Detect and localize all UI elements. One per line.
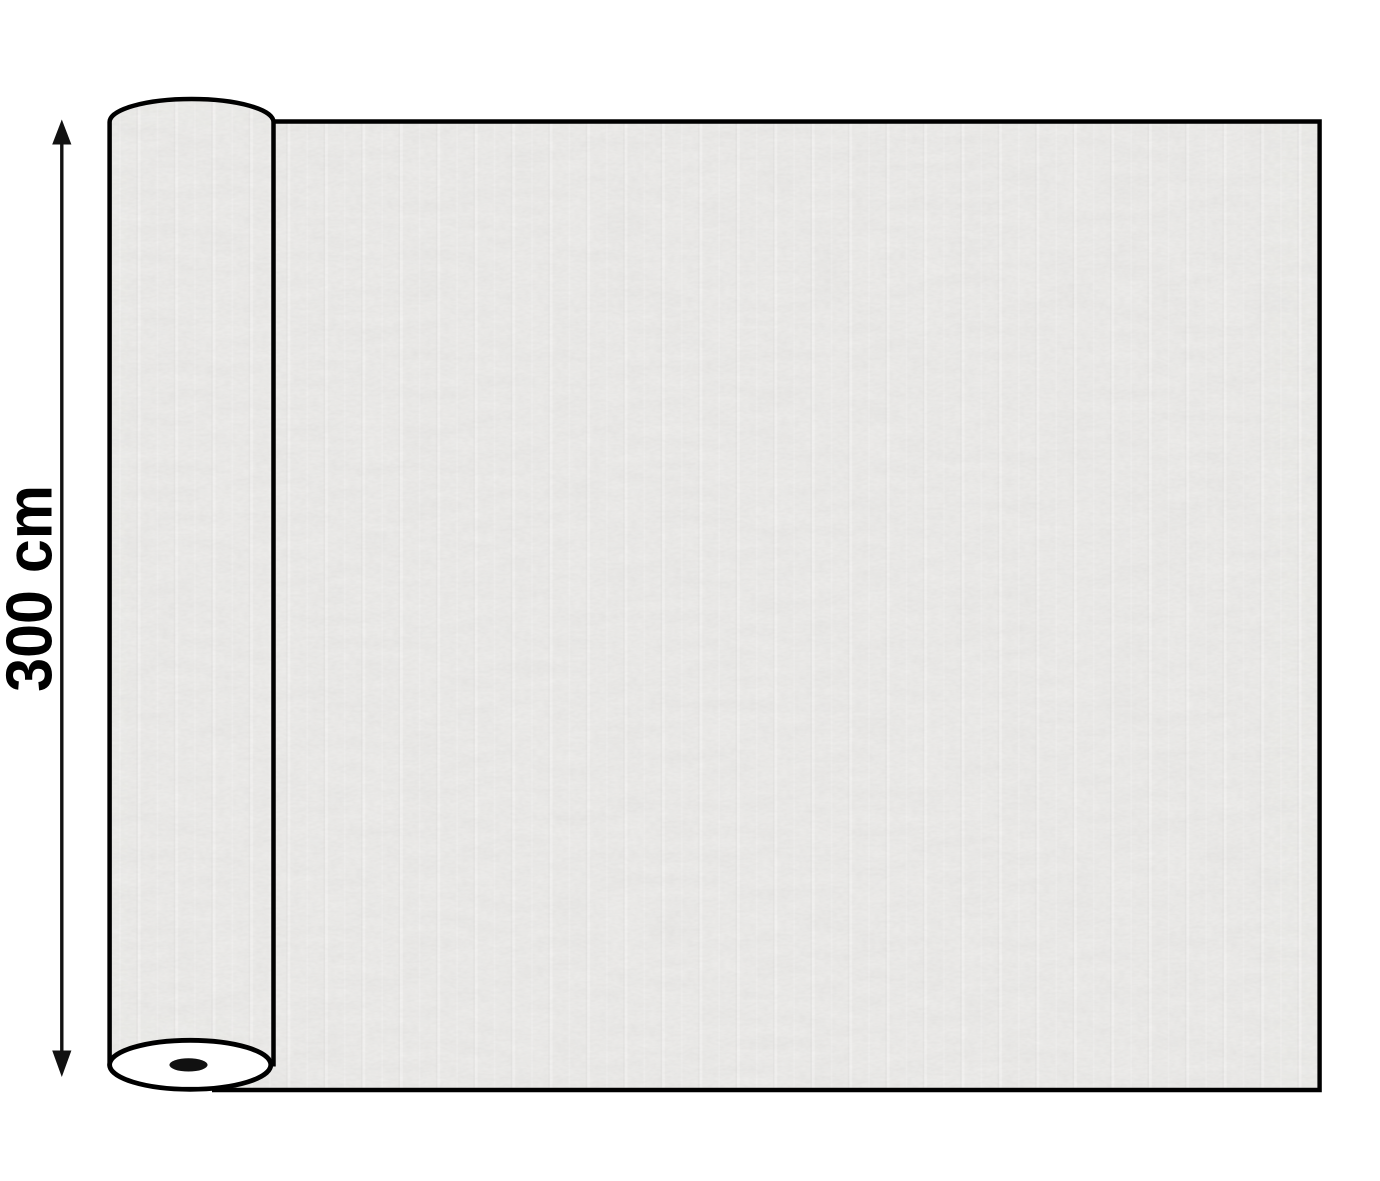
svg-text:300 cm: 300 cm [0,485,66,692]
